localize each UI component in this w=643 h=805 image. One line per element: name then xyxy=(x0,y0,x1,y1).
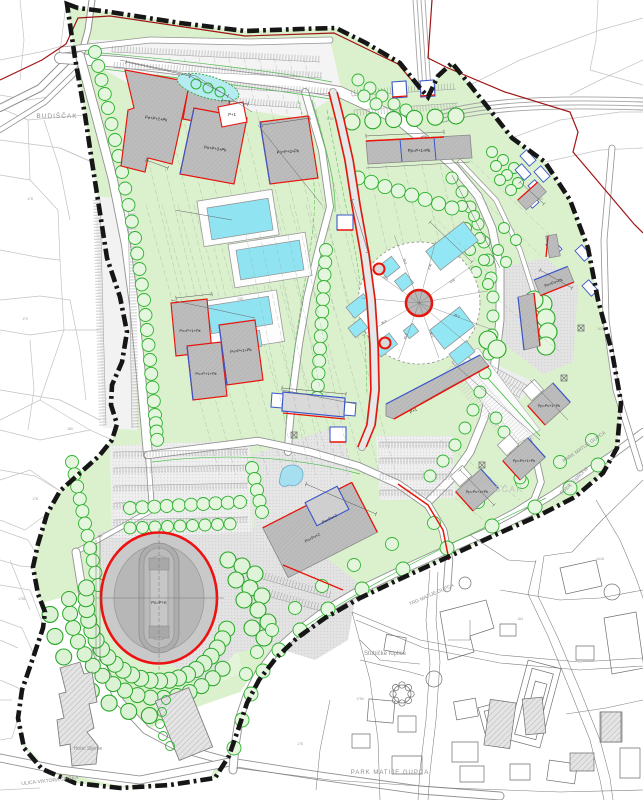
svg-text:Hotel Sljeme: Hotel Sljeme xyxy=(74,746,103,752)
svg-text:Pv=P+1+Pk: Pv=P+1+Pk xyxy=(179,328,200,333)
svg-text:180: 180 xyxy=(67,427,73,431)
svg-text:1782: 1782 xyxy=(326,117,334,121)
svg-text:135: 135 xyxy=(237,297,243,301)
svg-text:179: 179 xyxy=(22,317,28,321)
svg-text:1784: 1784 xyxy=(356,697,364,701)
svg-text:BUDIŠČAK: BUDIŠČAK xyxy=(36,111,77,120)
svg-text:Pp=P+1+Pk: Pp=P+1+Pk xyxy=(408,148,431,153)
svg-text:Pp=Pv+1+Pk: Pp=Pv+1+Pk xyxy=(538,404,560,408)
svg-text:178: 178 xyxy=(32,497,38,501)
svg-text:1418: 1418 xyxy=(596,557,604,561)
svg-text:184: 184 xyxy=(517,617,523,621)
svg-text:P+1: P+1 xyxy=(228,112,236,117)
svg-text:Po=P+K: Po=P+K xyxy=(151,600,167,605)
svg-text:1781: 1781 xyxy=(18,597,26,601)
svg-text:Pp=Pv+1+Pk: Pp=Pv+1+Pk xyxy=(466,490,488,494)
svg-text:Pv=P+1+Pk: Pv=P+1+Pk xyxy=(195,371,216,376)
svg-text:178: 178 xyxy=(27,197,33,201)
svg-text:Stubičke toplice: Stubičke toplice xyxy=(364,651,407,657)
svg-text:Pp=Pv+1+Pk: Pp=Pv+1+Pk xyxy=(513,459,535,463)
svg-text:PARK MATIJE GUPCA: PARK MATIJE GUPCA xyxy=(351,770,429,776)
svg-text:178: 178 xyxy=(297,742,303,746)
svg-text:162: 162 xyxy=(597,327,603,331)
